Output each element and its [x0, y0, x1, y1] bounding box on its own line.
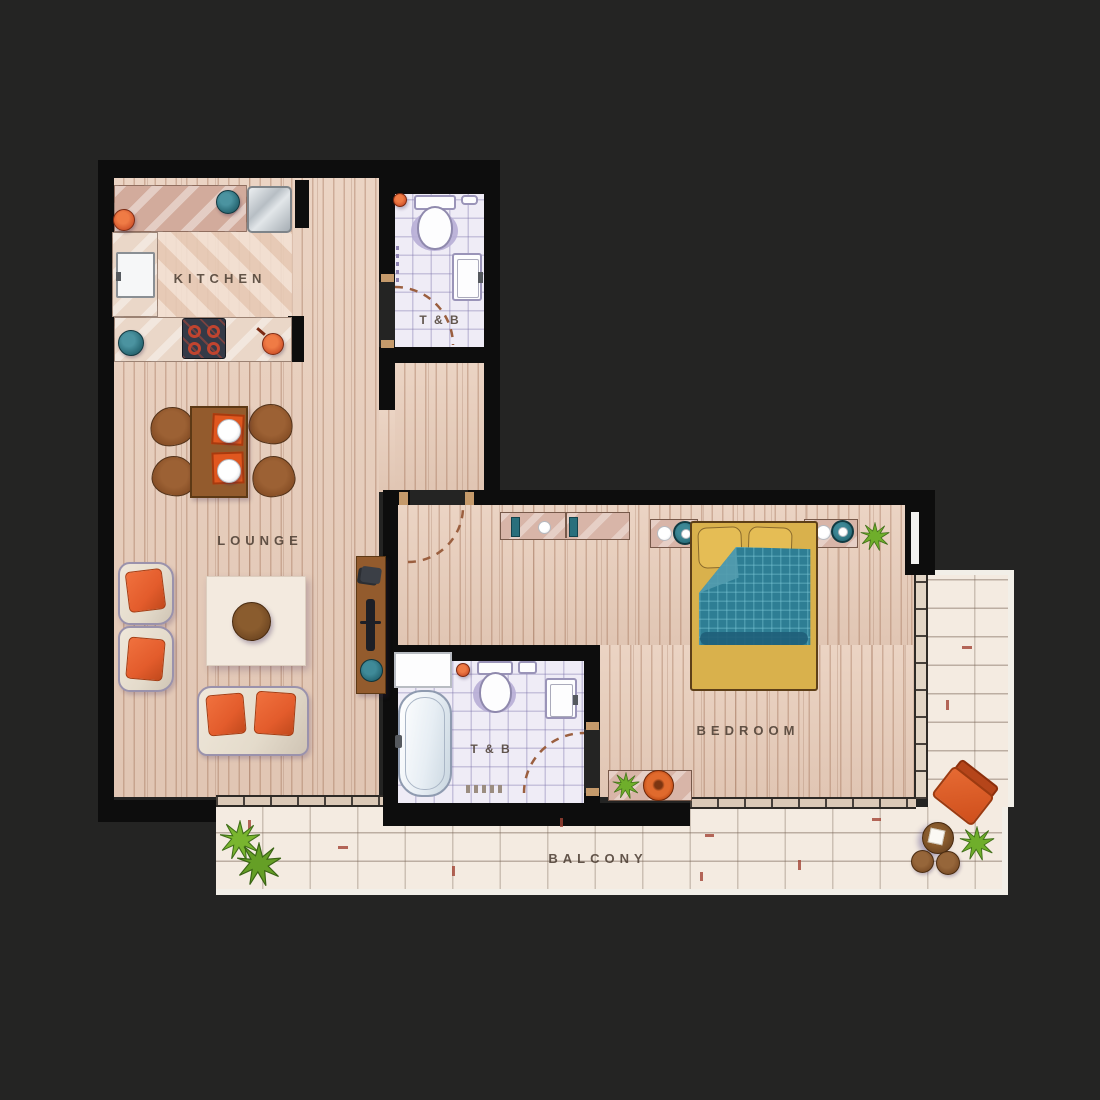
shower-dashes: [396, 246, 399, 282]
tv-console: [356, 556, 386, 694]
armchair-cushion: [125, 636, 166, 681]
tv-icon: [366, 599, 375, 651]
dresser-divider: [565, 513, 567, 538]
faucet: [478, 272, 483, 283]
balcony-stool: [911, 850, 934, 873]
bedroom-door-jamb-left: [399, 492, 408, 505]
bath2-door-jamb-top: [586, 722, 599, 730]
tile-accent: [872, 818, 881, 821]
balcony-label: BALCONY: [533, 851, 663, 866]
bedroom-label: BEDROOM: [678, 723, 818, 738]
washbasin-icon: [452, 253, 482, 301]
bathtub-icon: [398, 690, 452, 797]
toilet-icon: [479, 672, 512, 713]
tile-accent: [798, 860, 801, 870]
wall-kitchen-stub-top: [295, 180, 309, 228]
bedroom-door-jamb-right: [465, 492, 474, 505]
coffee-table-icon: [232, 602, 271, 641]
table-napkin: [928, 828, 946, 846]
wall-bath1-top: [379, 160, 500, 194]
burner: [188, 342, 201, 355]
bath2-label: T & B: [456, 742, 526, 756]
wall-bath2-right-upper: [584, 645, 600, 729]
pan-icon: [262, 333, 284, 355]
bath2-door-jamb-bottom: [586, 788, 599, 796]
kitchen-label: KITCHEN: [160, 271, 280, 286]
basin-inner: [550, 684, 573, 717]
wall-top: [98, 160, 398, 178]
tile-accent: [705, 834, 714, 837]
decor-bowl: [360, 659, 383, 682]
wall-bedroom-corner-block: [905, 490, 935, 575]
bath1-door-jamb-top: [381, 274, 394, 282]
tile-accent: [962, 646, 972, 649]
bath-mat-dashes: [466, 785, 502, 793]
duvet-roll: [700, 632, 808, 645]
plate-icon: [217, 459, 241, 483]
wall-stub-below-bath1: [379, 347, 395, 410]
hall-floor: [395, 363, 484, 490]
pan-icon: [113, 209, 135, 231]
hall-floor-opening: [379, 410, 395, 492]
pot-icon: [118, 330, 144, 356]
tile-accent: [700, 872, 703, 881]
bedroom-dresser: [500, 512, 630, 540]
washer-counter: [394, 652, 452, 688]
kitchen-steel-appliance: [247, 186, 292, 233]
books-teal: [569, 517, 578, 537]
washbasin-icon: [545, 678, 577, 719]
wall-bath1-right: [484, 160, 500, 505]
balcony-stool: [936, 851, 960, 875]
wall-bottom-middle: [383, 803, 690, 826]
basin-inner: [457, 259, 479, 298]
tile-accent: [560, 818, 563, 827]
toilet-icon: [417, 206, 453, 250]
bath2-accessory-dot: [456, 663, 470, 677]
corner-window-bar: [911, 512, 919, 564]
armchair-cushion: [125, 568, 167, 613]
wall-bath1-left: [379, 194, 395, 282]
books-teal: [511, 517, 520, 537]
plant-icon: [858, 522, 892, 552]
tile-accent: [338, 846, 348, 849]
bath1-accessory-dot: [393, 193, 407, 207]
lamp-center: [838, 527, 848, 537]
wall-bedroom-top: [468, 490, 905, 505]
sofa-cushion: [205, 692, 246, 736]
sofa-cushion: [254, 691, 297, 737]
plate-icon: [217, 419, 241, 443]
tv-stand: [360, 621, 381, 624]
burner: [207, 342, 220, 355]
refrigerator-icon: [116, 252, 155, 298]
cooktop-icon: [182, 318, 226, 359]
decor-dot: [816, 525, 831, 540]
wall-bottom-left: [98, 800, 216, 822]
burner: [188, 325, 201, 338]
plant-icon: [958, 826, 996, 862]
soap-tray: [461, 195, 478, 205]
decor-dot: [657, 526, 672, 541]
burner: [207, 325, 220, 338]
bath1-door-jamb-bottom: [381, 340, 394, 348]
tub-faucet: [395, 735, 402, 748]
shelf-tray: [518, 661, 537, 674]
bedroom-balcony-window: [690, 797, 916, 809]
lounge-balcony-window: [216, 795, 383, 807]
wall-bath1-bottom: [393, 347, 484, 363]
faucet: [573, 695, 578, 705]
pot-icon: [216, 190, 240, 214]
plant-icon: [612, 772, 640, 800]
tile-accent: [946, 700, 949, 710]
bath1-label: T & B: [405, 313, 475, 327]
bedroom-balcony-side-window: [914, 575, 928, 799]
floor-plan-canvas: KITCHEN LOUNGE T & B T & B BEDROOM BALCO…: [0, 0, 1100, 1100]
decor-dot: [538, 521, 551, 534]
lounge-label: LOUNGE: [195, 533, 325, 548]
fridge-handle: [116, 272, 121, 281]
bench-cushion: [643, 770, 674, 801]
media-box: [360, 566, 382, 585]
tile-accent: [452, 866, 455, 876]
plant-icon: [236, 842, 282, 888]
